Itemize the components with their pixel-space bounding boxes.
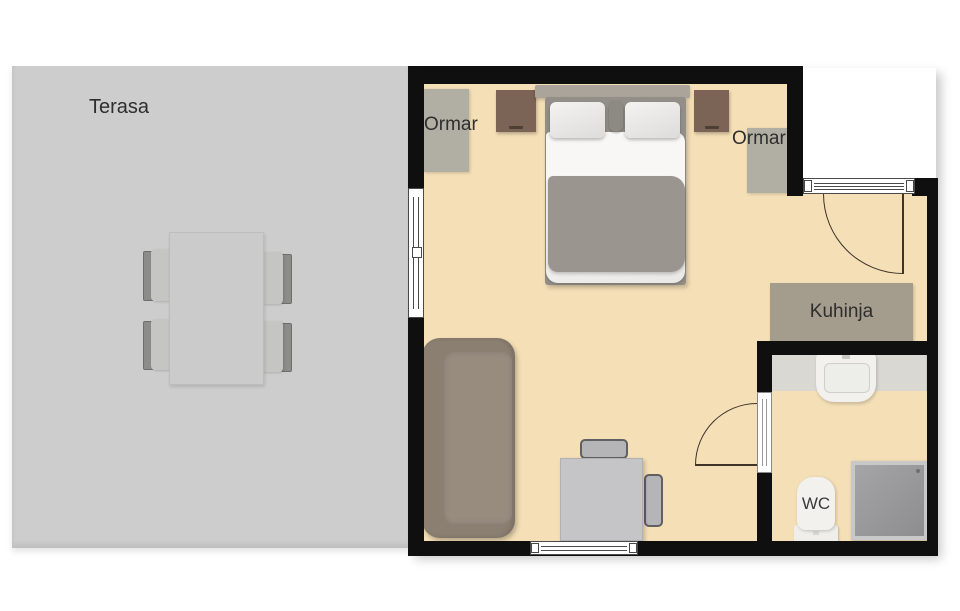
wall-bathroom-left-upper (757, 355, 772, 392)
bed-blanket (548, 176, 685, 272)
desk-table (560, 458, 643, 541)
toilet: WC (794, 477, 838, 543)
nightstand-left (496, 90, 536, 132)
wall-kitchen-bathroom (757, 341, 938, 355)
bathroom-door-leaf (695, 464, 758, 466)
terrace-label: Terasa (89, 96, 149, 119)
kitchen-counter: Kuhinja (770, 283, 913, 341)
wardrobe-left-label: Ormar (424, 114, 478, 136)
desk-chair-top (580, 439, 628, 459)
bathroom-sink (816, 351, 876, 402)
sofa-cushion (444, 352, 512, 524)
floor-plan: Terasa Kuhinja WC (0, 0, 960, 611)
desk-chair-right (644, 474, 663, 527)
pillow-left (550, 102, 605, 138)
terrace-table (169, 232, 264, 385)
wall-top-right-corner (912, 178, 938, 196)
wall-bathroom-left-lower (757, 473, 772, 541)
pillow-right (625, 102, 680, 138)
toilet-bowl: WC (797, 477, 835, 530)
window-bottom (530, 541, 638, 555)
shower-drain-icon (916, 469, 920, 473)
wc-label: WC (802, 494, 830, 514)
wall-top (408, 66, 803, 84)
wardrobe-right-label: Ormar (732, 128, 786, 150)
wall-right (927, 196, 938, 556)
wall-entry-corner (787, 66, 803, 196)
bathroom-door-panel (757, 392, 772, 473)
entry-door-window (803, 178, 915, 194)
terrace-chair-bottom-right (261, 321, 292, 372)
kitchen-label: Kuhinja (810, 301, 873, 323)
entry-door-leaf (902, 194, 904, 274)
wall-left-lower (408, 318, 424, 556)
window-left (408, 188, 424, 318)
sofa (422, 338, 515, 538)
wall-bottom (408, 541, 938, 556)
terrace-chair-top-right (261, 252, 292, 304)
faucet-icon (842, 355, 850, 359)
pillow-center (609, 101, 623, 132)
nightstand-right (694, 90, 729, 132)
wall-left-upper (408, 66, 424, 188)
shower (851, 461, 928, 540)
